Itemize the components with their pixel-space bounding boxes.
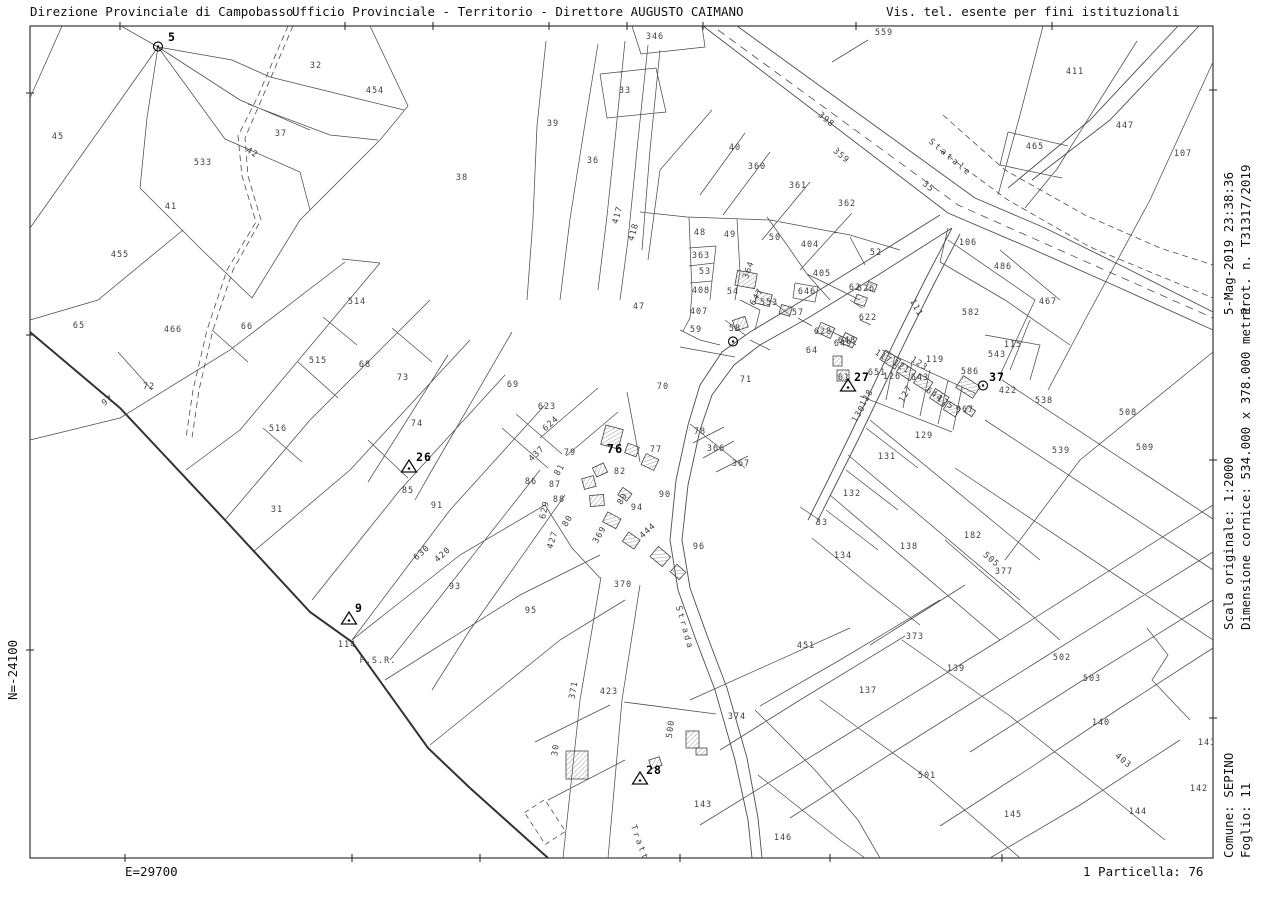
road-name-label: Statale: [926, 137, 973, 179]
parcel-label: 623: [538, 402, 556, 412]
parcel-label: 444: [638, 521, 658, 541]
parcel-label: 78: [694, 427, 706, 437]
parcel-label: 503: [1083, 674, 1101, 684]
parcel-label: 95: [525, 606, 537, 616]
parcel-label: P.S.R.: [360, 656, 397, 666]
parcel-label: 364: [741, 260, 757, 281]
parcel-label: 361: [789, 181, 807, 191]
parcel-label: 81: [553, 462, 568, 478]
parcel-label: 643: [911, 373, 929, 383]
parcel-label: 140: [1092, 718, 1110, 728]
survey-point-circle-icon: [977, 377, 989, 396]
parcel-label: 35: [920, 179, 936, 195]
parcel-label: 403: [1113, 751, 1133, 770]
parcel-label: 143: [694, 800, 712, 810]
parcel-label: 74: [411, 419, 423, 429]
parcel-label: 405: [813, 269, 831, 279]
parcel-label: 117: [873, 348, 894, 366]
parcel-label: 71: [740, 375, 752, 385]
scale-block: Scala originale: 1:2000 Dimensione corni…: [1220, 300, 1256, 630]
parcel-label: 508: [1119, 408, 1137, 418]
parcel-label: 125: [935, 394, 956, 412]
stamp-protocol-block: 5-Mag-2019 23:38:36 Prot. n. T31317/2019: [1220, 30, 1256, 315]
parcel-label: 137: [859, 686, 877, 696]
stamp-protocol: Prot. n. T31317/2019: [1237, 164, 1254, 315]
parcel-label: 86: [525, 477, 537, 487]
parcel-label: 360: [748, 162, 766, 172]
map-labels-layer: 4532454374253341383933363464174184755940…: [30, 26, 1213, 858]
parcel-label: 437: [527, 444, 547, 464]
parcel-label: 516: [269, 424, 287, 434]
parcel-label: 73: [397, 373, 409, 383]
parcel-label: 500: [665, 719, 677, 739]
survey-point-number: 5: [168, 30, 176, 44]
parcel-label: 624: [541, 414, 561, 434]
parcel-label: 465: [1026, 142, 1044, 152]
parcel-label: 129: [915, 431, 933, 441]
parcel-label: 42: [244, 146, 260, 161]
parcel-label: 115: [1004, 340, 1022, 350]
parcel-label: 420: [433, 545, 453, 565]
parcel-label: 139: [947, 664, 965, 674]
parcel-label: 87: [549, 480, 561, 490]
parcel-label: 559: [875, 28, 893, 38]
parcel-label: 427: [545, 530, 560, 551]
parcel-label: 106: [959, 238, 977, 248]
parcel-label: 466: [164, 325, 182, 335]
parcel-label: 49: [724, 230, 736, 240]
parcel-label: 582: [962, 308, 980, 318]
parcel-label: 628: [814, 327, 832, 337]
parcel-label: 454: [366, 86, 384, 96]
parcel-label: 85: [402, 486, 414, 496]
parcel-label: 96: [693, 542, 705, 552]
parcel-label: 630: [412, 543, 432, 563]
parcel-label: 77: [650, 445, 662, 455]
survey-point-number: 27: [854, 370, 870, 384]
parcel-label: 543: [988, 350, 1006, 360]
parcel-label: 39: [547, 119, 559, 129]
parcel-label: 622: [859, 313, 877, 323]
parcel-label: 54: [727, 287, 739, 297]
parcel-label: 141: [1198, 738, 1213, 748]
parcel-label: 126: [883, 372, 901, 382]
parcel-label: 145: [1004, 810, 1022, 820]
survey-point-number: 26: [416, 450, 432, 464]
parcel-label: 107: [1174, 149, 1192, 159]
parcel-label: 130: [850, 404, 868, 425]
parcel-label: 371: [567, 680, 580, 700]
parcel-label: 451: [797, 641, 815, 651]
parcel-label: 417: [611, 205, 625, 225]
parcel-label: 422: [999, 386, 1017, 396]
road-name-label: Strada: [673, 605, 695, 652]
parcel-label: 423: [600, 687, 618, 697]
comune-name: Comune: SEPINO: [1220, 753, 1237, 858]
parcel-label: 629: [538, 500, 552, 520]
parcel-label: 377: [995, 567, 1013, 577]
foglio-number: Foglio: 11: [1237, 783, 1254, 858]
parcel-label: 373: [906, 632, 924, 642]
parcel-label: 38: [456, 173, 468, 183]
parcel-label: 59: [690, 325, 702, 335]
parcel-label: 649: [834, 339, 852, 349]
parcel-label: 515: [309, 356, 327, 366]
parcel-label: 36: [587, 156, 599, 166]
survey-point-number: 37: [989, 370, 1005, 384]
parcel-label: 553: [760, 298, 778, 308]
parcel-label: 52: [870, 248, 882, 258]
parcel-label: 447: [1116, 121, 1134, 131]
parcel-label: 502: [1053, 653, 1071, 663]
parcel-label: 82: [614, 467, 626, 477]
parcel-label: 72: [143, 382, 155, 392]
parcel-label: 90: [659, 490, 671, 500]
parcel-label: 41: [165, 202, 177, 212]
survey-point-number: 28: [646, 763, 662, 777]
parcel-label: 89: [616, 491, 631, 507]
parcel-label: 370: [614, 580, 632, 590]
parcel-label: 404: [801, 240, 819, 250]
comune-block: Comune: SEPINO Foglio: 11: [1220, 726, 1256, 858]
parcel-label: 626: [857, 284, 875, 294]
parcel-label: 362: [838, 199, 856, 209]
parcel-label: 363: [692, 251, 710, 261]
parcel-label: 79: [564, 448, 576, 458]
parcel-label: 57: [792, 308, 804, 318]
parcel-label: 539: [1052, 446, 1070, 456]
parcel-label: 80: [561, 513, 576, 529]
parcel-label: 47: [633, 302, 645, 312]
parcel-label: 91: [431, 501, 443, 511]
parcel-label: 76: [607, 442, 623, 456]
parcel-label: 40: [729, 143, 741, 153]
parcel-label: 88: [553, 495, 565, 505]
parcel-label: 66: [241, 322, 253, 332]
parcel-label: 142: [1190, 784, 1208, 794]
scale-original: Scala originale: 1:2000: [1220, 457, 1237, 630]
parcel-label: 501: [918, 771, 936, 781]
parcel-label: 53: [699, 267, 711, 277]
parcel-label: 132: [843, 489, 861, 499]
survey-point-number: 9: [355, 601, 363, 615]
parcel-label: 467: [1039, 297, 1057, 307]
frame-size: Dimensione cornice: 534.000 x 378.000 me…: [1237, 306, 1254, 630]
parcel-label: 48: [694, 228, 706, 238]
road-name-label: Tratturo: [628, 824, 658, 858]
parcel-label: 967: [956, 405, 974, 415]
parcel-label: 70: [657, 382, 669, 392]
parcel-label: 408: [692, 286, 710, 296]
parcel-label: 398: [816, 110, 836, 129]
parcel-label: 127: [897, 384, 915, 405]
north-coordinate: N=-24100: [4, 640, 21, 700]
parcel-label: 146: [774, 833, 792, 843]
parcel-label: 93: [449, 582, 461, 592]
parcel-label: 50: [769, 233, 781, 243]
parcel-label: 65: [73, 321, 85, 331]
parcel-label: 31: [271, 505, 283, 515]
north-coordinate-block: N=-24100: [4, 600, 24, 700]
parcel-label: 182: [964, 531, 982, 541]
parcel-label: 374: [728, 712, 746, 722]
parcel-label: 407: [690, 307, 708, 317]
parcel-label: 538: [1035, 396, 1053, 406]
parcel-label: 134: [834, 551, 852, 561]
parcel-label: 366: [707, 444, 725, 454]
parcel-label: 455: [111, 250, 129, 260]
parcel-label: 33: [816, 518, 828, 528]
parcel-label: 369: [591, 525, 609, 546]
parcel-label: 97: [100, 393, 116, 408]
survey-point-circle-icon: [727, 333, 739, 352]
parcel-label: 114: [338, 640, 356, 650]
parcel-label: 45: [52, 132, 64, 142]
survey-point-circle-icon: [152, 38, 164, 57]
particella-label: 1 Particella: 76: [1083, 864, 1203, 879]
parcel-label: 111: [907, 298, 924, 319]
parcel-label: 68: [359, 360, 371, 370]
parcel-label: 514: [348, 297, 366, 307]
parcel-label: 533: [194, 158, 212, 168]
parcel-label: 359: [831, 146, 851, 165]
parcel-label: 69: [507, 380, 519, 390]
parcel-label: 486: [994, 262, 1012, 272]
parcel-label: 138: [900, 542, 918, 552]
parcel-label: 64: [806, 346, 818, 356]
parcel-label: 144: [1129, 807, 1147, 817]
parcel-label: 32: [310, 61, 322, 71]
cadastral-map-page: Direzione Provinciale di Campobasso Uffi…: [0, 0, 1280, 900]
parcel-label: 586: [961, 367, 979, 377]
parcel-label: 367: [732, 459, 750, 469]
parcel-label: 346: [646, 32, 664, 42]
parcel-label: 33: [619, 86, 631, 96]
stamp-date: 5-Mag-2019 23:38:36: [1220, 172, 1237, 315]
parcel-label: 509: [1136, 443, 1154, 453]
parcel-label: 30: [550, 743, 562, 757]
parcel-label: 418: [627, 222, 641, 242]
parcel-label: 411: [1066, 67, 1084, 77]
parcel-label: 94: [631, 503, 643, 513]
east-coordinate: E=29700: [125, 864, 178, 879]
parcel-label: 646: [798, 287, 816, 297]
parcel-label: 131: [878, 452, 896, 462]
parcel-label: 37: [275, 129, 287, 139]
